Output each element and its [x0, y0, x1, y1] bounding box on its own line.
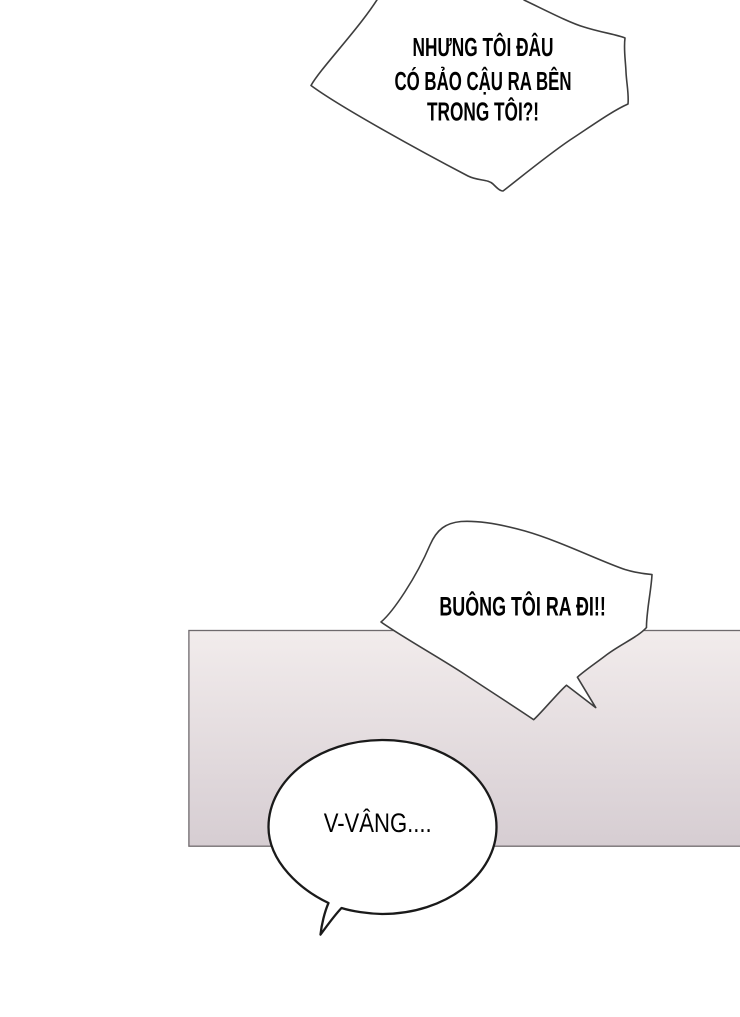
svg-text:TRONG TÔI?!: TRONG TÔI?! [427, 97, 539, 127]
svg-text:CÓ BẢO CẬU RA BÊN: CÓ BẢO CẬU RA BÊN [395, 66, 572, 96]
svg-text:V-VÂNG....: V-VÂNG.... [324, 807, 432, 838]
svg-text:NHƯNG TÔI ĐÂU: NHƯNG TÔI ĐÂU [413, 32, 554, 62]
svg-text:BUÔNG TÔI RA ĐI!!: BUÔNG TÔI RA ĐI!! [439, 590, 606, 621]
